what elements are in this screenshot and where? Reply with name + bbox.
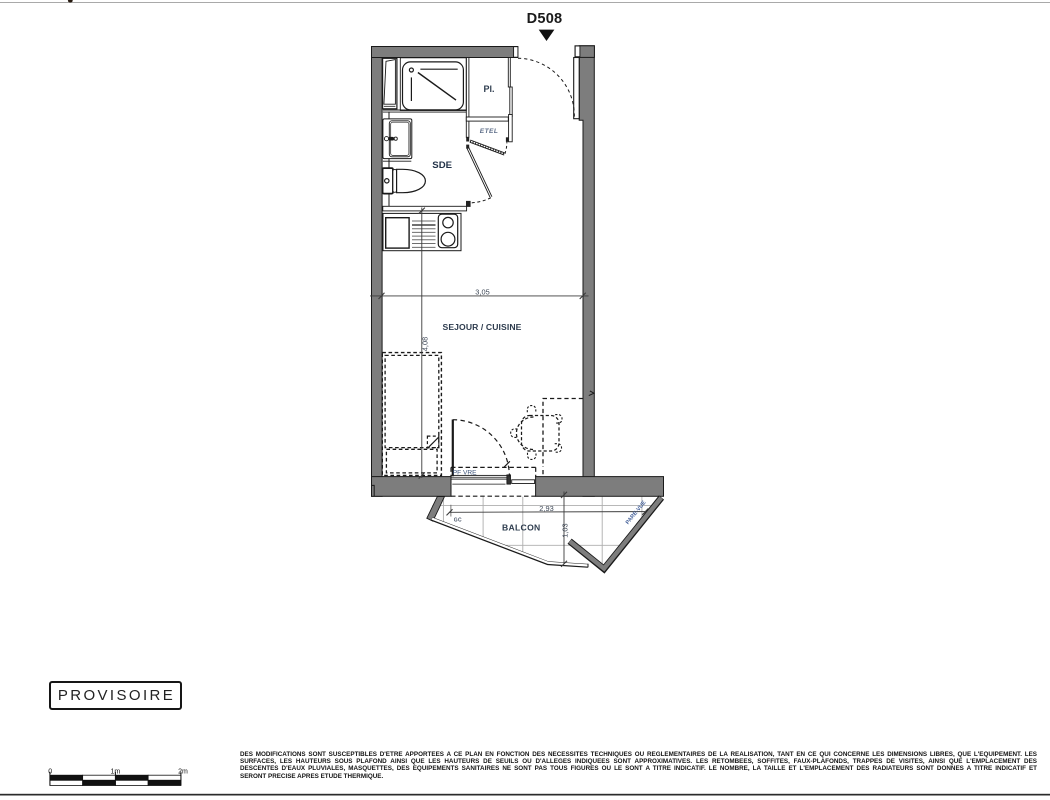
svg-text:1m: 1m — [111, 768, 121, 775]
svg-text:ETEL: ETEL — [480, 128, 498, 135]
svg-text:GC: GC — [454, 517, 462, 523]
svg-text:2,93: 2,93 — [539, 504, 553, 513]
svg-text:4,08: 4,08 — [421, 337, 430, 351]
svg-text:SDE: SDE — [432, 160, 452, 171]
svg-text:Pl.: Pl. — [484, 84, 495, 94]
svg-text:PF VRE: PF VRE — [453, 470, 477, 477]
svg-text:SEJOUR / CUISINE: SEJOUR / CUISINE — [443, 322, 522, 332]
svg-text:2m: 2m — [178, 768, 188, 775]
svg-text:0: 0 — [48, 768, 52, 775]
svg-text:1,03: 1,03 — [560, 523, 569, 537]
svg-text:BALCON: BALCON — [502, 523, 541, 533]
svg-text:3,05: 3,05 — [475, 287, 489, 296]
svg-text:D508: D508 — [527, 11, 563, 27]
